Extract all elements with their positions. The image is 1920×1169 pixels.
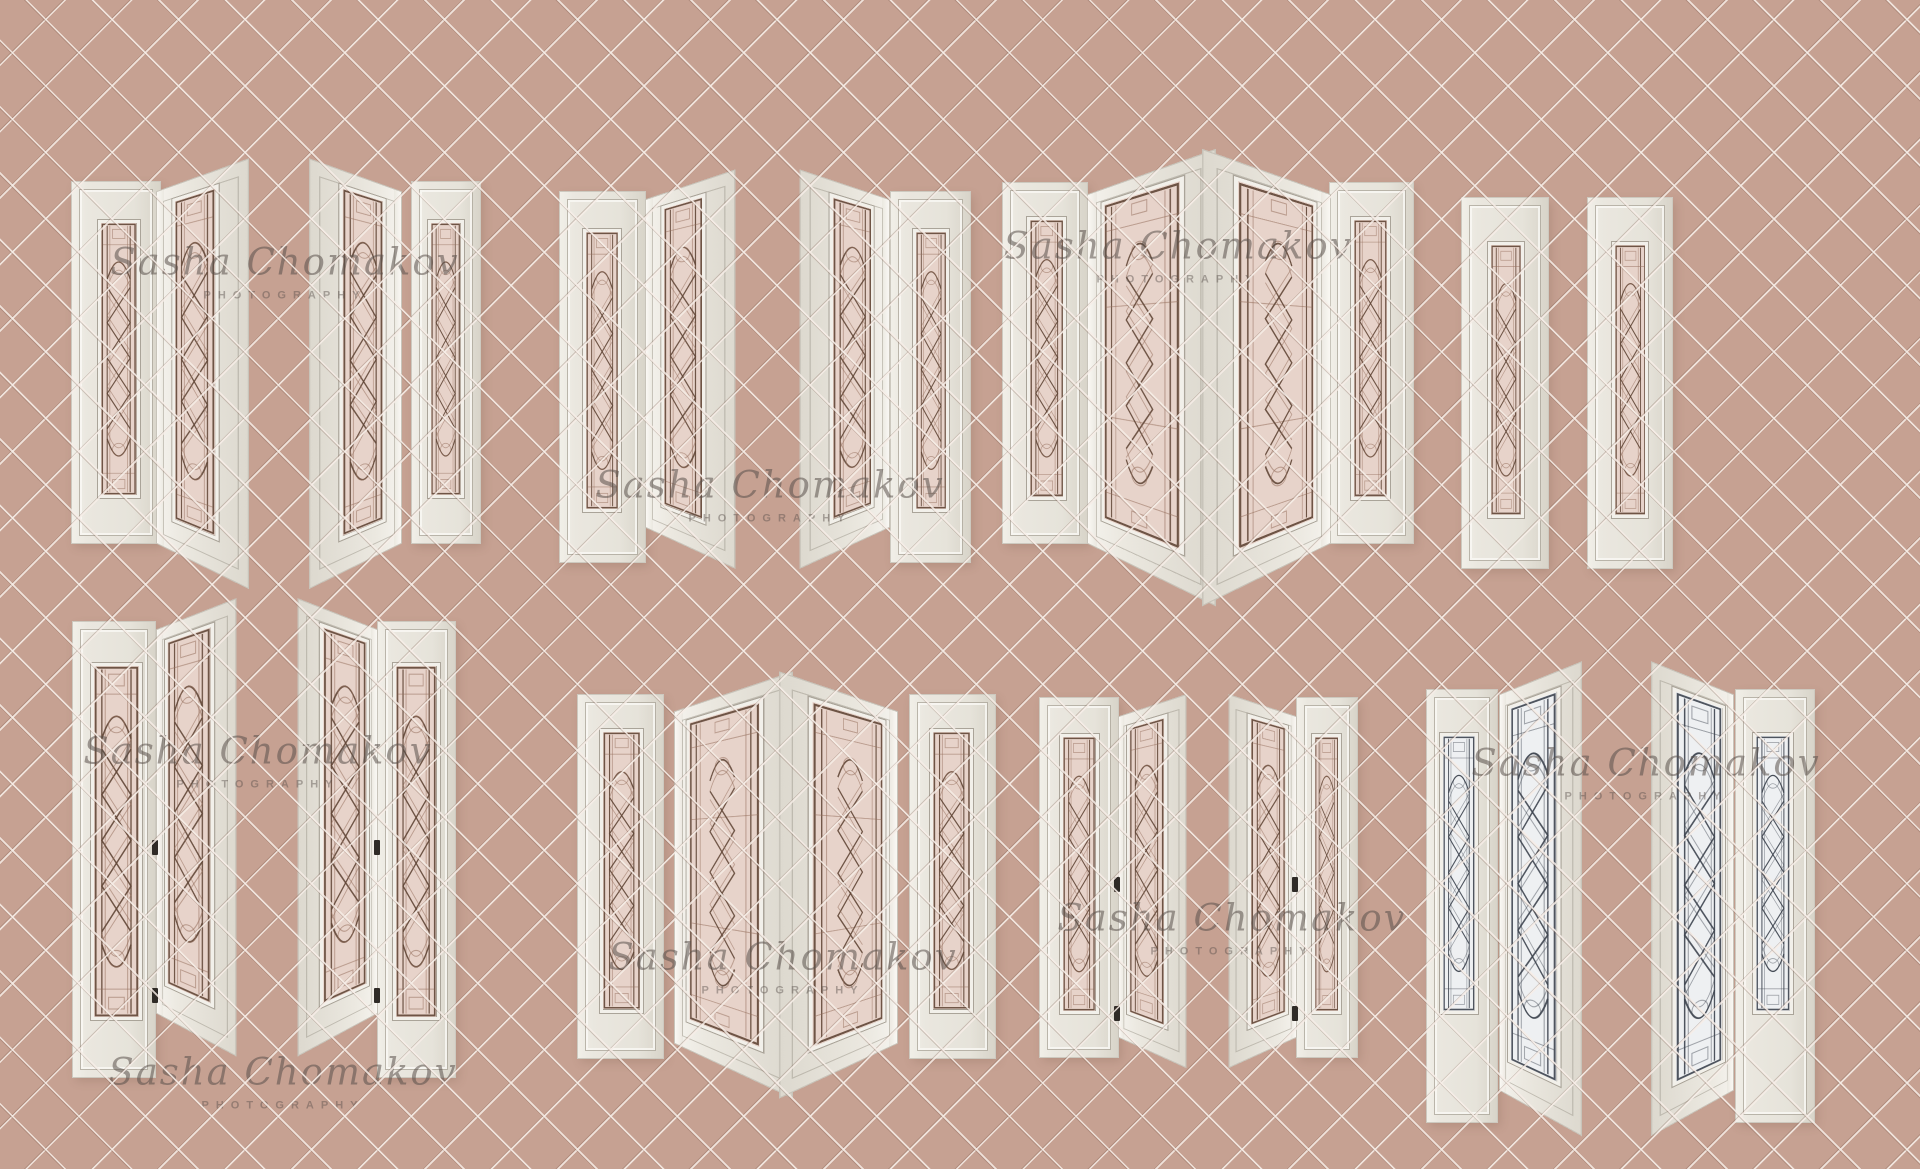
glass-frame bbox=[320, 623, 369, 1008]
leaded-glass bbox=[916, 232, 946, 509]
door-leaf bbox=[1500, 663, 1581, 1135]
glass-frame bbox=[1673, 687, 1725, 1087]
leaded-glass bbox=[586, 232, 618, 509]
door-leaf bbox=[157, 600, 235, 1055]
b3-door-open-right bbox=[792, 712, 897, 1043]
door-hinge bbox=[152, 988, 158, 1003]
glass-frame bbox=[393, 663, 439, 1020]
t3-door-flat bbox=[560, 192, 645, 562]
leaded-glass bbox=[813, 701, 883, 1046]
leaded-glass bbox=[431, 223, 460, 495]
glass-frame bbox=[829, 193, 874, 524]
door-leaf bbox=[310, 160, 401, 588]
b3-sidelite-left bbox=[578, 695, 663, 1058]
b2-door-open bbox=[301, 630, 377, 1013]
t1-sidelite bbox=[72, 182, 160, 543]
door-leaf bbox=[1119, 696, 1185, 1067]
b3-sidelite-right bbox=[910, 695, 995, 1058]
leaded-glass bbox=[1354, 220, 1387, 497]
t6-door-flat bbox=[1330, 183, 1413, 543]
leaded-glass bbox=[343, 189, 383, 536]
door-hinge bbox=[1292, 877, 1298, 892]
door-leaf bbox=[801, 171, 889, 567]
leaded-glass bbox=[1491, 245, 1521, 515]
door-hinge bbox=[374, 840, 380, 855]
door-leaf bbox=[157, 160, 248, 588]
t2-door-open bbox=[315, 192, 401, 543]
b7-door-open bbox=[1655, 695, 1733, 1090]
t8-sidelite bbox=[1588, 198, 1672, 568]
b6-door-open bbox=[1500, 695, 1578, 1090]
leaded-glass bbox=[1063, 737, 1095, 1011]
leaded-glass bbox=[1443, 736, 1475, 1011]
glass-frame bbox=[165, 623, 214, 1008]
photo-canvas: Sasha ChomakovPHOTOGRAPHYSasha ChomakovP… bbox=[0, 0, 1920, 1169]
b4-door-open bbox=[1119, 717, 1185, 1037]
door-leaf bbox=[1203, 151, 1330, 605]
glass-frame bbox=[1488, 242, 1524, 518]
leaded-glass bbox=[94, 666, 139, 1017]
t5-door-open bbox=[1088, 195, 1200, 543]
glass-frame bbox=[1753, 733, 1793, 1014]
leaded-glass bbox=[1251, 718, 1285, 1025]
glass-frame bbox=[913, 229, 949, 512]
leaded-glass bbox=[1756, 736, 1790, 1011]
b6-sidelite bbox=[1427, 690, 1497, 1122]
leaded-glass bbox=[1315, 737, 1338, 1011]
t2-sidelite bbox=[412, 182, 480, 543]
b1-door-open bbox=[157, 630, 233, 1013]
glass-frame bbox=[172, 184, 218, 541]
leaded-glass bbox=[1615, 245, 1646, 515]
leaded-glass bbox=[832, 198, 871, 520]
glass-frame bbox=[686, 697, 763, 1052]
glass-frame bbox=[1612, 242, 1649, 518]
door-leaf bbox=[675, 673, 791, 1097]
glass-frame bbox=[91, 663, 142, 1020]
b4-door-flat bbox=[1040, 698, 1118, 1057]
glass-frame bbox=[600, 729, 643, 1012]
watermark-subtitle: PHOTOGRAPHY bbox=[108, 1100, 457, 1112]
b1-door-flat bbox=[73, 622, 155, 1077]
door-leaf bbox=[1088, 151, 1215, 605]
glass-frame bbox=[1235, 176, 1317, 555]
leaded-glass bbox=[101, 223, 136, 495]
glass-frame bbox=[1027, 217, 1066, 500]
leaded-glass bbox=[664, 198, 703, 520]
glass-frame bbox=[1127, 714, 1167, 1030]
t4-door-open bbox=[805, 200, 889, 527]
glass-frame bbox=[339, 184, 385, 541]
glass-frame bbox=[98, 220, 139, 498]
leaded-glass bbox=[175, 189, 215, 536]
b5-door-flat bbox=[1297, 698, 1357, 1057]
b3-door-open-left bbox=[675, 712, 780, 1043]
leaded-glass bbox=[933, 732, 970, 1009]
b7-sidelite bbox=[1736, 690, 1814, 1122]
glass-frame bbox=[809, 697, 886, 1052]
t6-door-open bbox=[1218, 195, 1330, 543]
glass-frame bbox=[1101, 176, 1183, 555]
glass-frame bbox=[1060, 734, 1098, 1014]
t1-door-open bbox=[157, 192, 243, 543]
leaded-glass bbox=[1511, 691, 1557, 1082]
b2-door-flat bbox=[378, 622, 455, 1077]
t5-door-flat bbox=[1003, 183, 1087, 543]
t7-sidelite bbox=[1462, 198, 1548, 568]
glass-frame bbox=[1312, 734, 1341, 1014]
leaded-glass bbox=[323, 628, 366, 1004]
leaded-glass bbox=[1130, 718, 1164, 1025]
leaded-glass bbox=[1676, 691, 1722, 1082]
glass-frame bbox=[661, 193, 706, 524]
t3-door-open bbox=[646, 200, 730, 527]
door-leaf bbox=[1230, 696, 1296, 1067]
door-hinge bbox=[1292, 1006, 1298, 1021]
glass-frame bbox=[1247, 714, 1287, 1030]
door-hinge bbox=[374, 988, 380, 1003]
door-hinge bbox=[152, 840, 158, 855]
leaded-glass bbox=[689, 701, 759, 1046]
door-hinge bbox=[1114, 877, 1120, 892]
door-leaf bbox=[781, 673, 897, 1097]
leaded-glass bbox=[396, 666, 436, 1017]
glass-frame bbox=[1508, 687, 1560, 1087]
leaded-glass bbox=[1238, 181, 1314, 549]
b5-door-open bbox=[1230, 717, 1296, 1037]
glass-frame bbox=[583, 229, 621, 512]
door-leaf bbox=[646, 171, 734, 567]
glass-frame bbox=[428, 220, 463, 498]
leaded-glass bbox=[603, 732, 640, 1009]
door-leaf bbox=[1652, 663, 1733, 1135]
leaded-glass bbox=[168, 628, 211, 1004]
leaded-glass bbox=[1030, 220, 1063, 497]
glass-frame bbox=[1351, 217, 1390, 500]
door-leaf bbox=[299, 600, 377, 1055]
t4-door-flat bbox=[891, 192, 970, 562]
leaded-glass bbox=[1104, 181, 1180, 549]
glass-frame bbox=[930, 729, 973, 1012]
door-hinge bbox=[1114, 1006, 1120, 1021]
glass-frame bbox=[1440, 733, 1478, 1014]
